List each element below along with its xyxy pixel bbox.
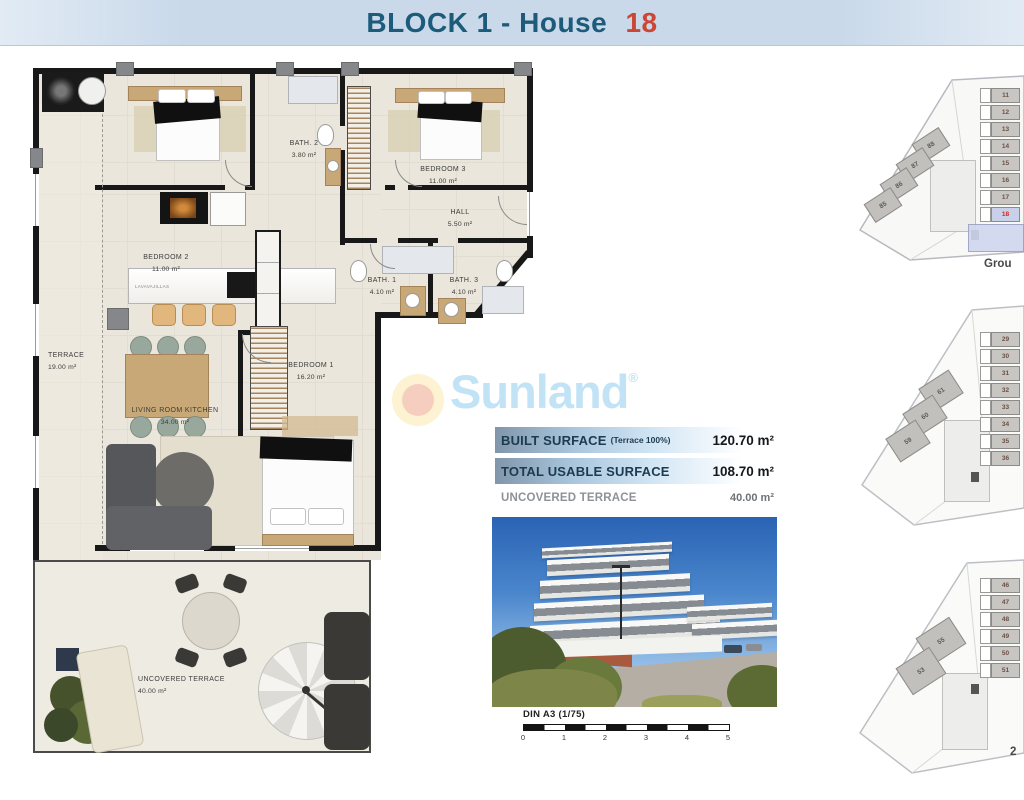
usable-surface-value: 108.70 m² — [712, 464, 774, 479]
side-table — [56, 648, 79, 671]
pillar — [276, 62, 294, 76]
dishwasher-label: LAVAVAJILLAS — [135, 284, 169, 289]
room-label-bedroom2: BEDROOM 211.00 m² — [116, 252, 216, 275]
pillar — [514, 62, 532, 76]
site-plan-second-floor: 46 47 48 49 50 51 55 53 — [852, 558, 1024, 793]
unit-cell: 35 — [980, 434, 1020, 449]
unit-18-footprint — [968, 224, 1024, 252]
unit-cell: 15 — [980, 156, 1020, 171]
title-bar: BLOCK 1 - House 18 — [0, 0, 1024, 46]
street-lamp-head — [612, 565, 630, 568]
washer-icon — [47, 77, 75, 105]
toilet-icon — [496, 260, 513, 282]
wardrobe — [347, 86, 371, 190]
site-plan-ground-floor: 11 12 13 14 15 16 17 18 88 87 86 85 — [852, 72, 1024, 272]
window — [33, 304, 39, 356]
page-title-number: 18 — [625, 7, 657, 38]
plant-icon — [44, 708, 78, 742]
terrace-table — [182, 592, 240, 650]
surface-table: BUILT SURFACE (Terrace 100%) 120.70 m² T… — [495, 427, 776, 512]
scale-tick: 0 — [521, 733, 525, 742]
wall — [458, 238, 533, 243]
scale-tick: 3 — [644, 733, 648, 742]
pillar — [116, 62, 134, 76]
uncovered-terrace-label: UNCOVERED TERRACE — [501, 492, 637, 504]
unit-cell: 51 — [980, 663, 1020, 678]
bed-footboard — [262, 534, 354, 546]
unit-cell: 33 — [980, 400, 1020, 415]
wall — [95, 185, 225, 190]
pillar — [107, 308, 129, 330]
unit-cell: 48 — [980, 612, 1020, 627]
unit-cell: 36 — [980, 451, 1020, 466]
room-label-terrace: TERRACE19.00 m² — [48, 350, 84, 373]
elevator-icon — [971, 472, 979, 482]
stool — [182, 304, 206, 326]
usable-surface-label: TOTAL USABLE SURFACE — [501, 464, 670, 479]
built-surface-label: BUILT SURFACE — [501, 433, 607, 448]
fridge-column — [210, 192, 246, 226]
stool — [152, 304, 176, 326]
built-surface-sublabel: (Terrace 100%) — [611, 435, 671, 445]
unit-cell: 34 — [980, 417, 1020, 432]
unit-cell: 16 — [980, 173, 1020, 188]
sink-icon — [327, 160, 339, 172]
page: BLOCK 1 - House 18 — [0, 0, 1024, 800]
street-lamp — [620, 567, 622, 639]
pillow — [308, 508, 344, 525]
stool — [212, 304, 236, 326]
unit-cell: 32 — [980, 383, 1020, 398]
site-plan-first-floor: 29 30 31 32 33 34 35 36 61 60 59 — [852, 300, 1024, 540]
elevator-icon — [971, 684, 979, 694]
unit-cell: 31 — [980, 366, 1020, 381]
unit-cell: 13 — [980, 122, 1020, 137]
unit-cell: 46 — [980, 578, 1020, 593]
scale-tick: 5 — [726, 733, 730, 742]
room-label-bedroom3: BEDROOM 311.00 m² — [393, 164, 493, 187]
round-rug — [152, 452, 214, 514]
unit-cell: 50 — [980, 646, 1020, 661]
scale-ruler — [523, 724, 730, 731]
site-plan-second-caption: 2 — [1010, 746, 1016, 758]
room-label-bath2: BATH. 23.80 m² — [274, 138, 334, 161]
pillar — [341, 62, 359, 76]
watermark-brand: Sunland® — [450, 364, 637, 419]
unit-cell-highlighted: 18 — [980, 207, 1020, 222]
scale-label: DIN A3 (1/75) — [523, 709, 735, 720]
unit-cell: 12 — [980, 105, 1020, 120]
scale-bar: DIN A3 (1/75) 0 1 2 3 4 5 — [523, 709, 735, 749]
pillow — [445, 91, 472, 104]
pillow — [270, 508, 306, 525]
shower — [288, 76, 338, 104]
pillar — [30, 148, 43, 168]
pillow — [158, 89, 186, 103]
car — [724, 645, 742, 653]
grass — [642, 695, 722, 707]
unit-cell: 49 — [980, 629, 1020, 644]
building-photo — [492, 517, 777, 707]
room-label-bedroom1: BEDROOM 116.20 m² — [261, 360, 361, 383]
page-title: BLOCK 1 - House 18 — [366, 7, 657, 39]
building-core — [930, 160, 976, 232]
dryer-icon — [78, 77, 106, 105]
wall — [345, 238, 377, 243]
usable-surface-row: TOTAL USABLE SURFACE 108.70 m² — [495, 458, 776, 484]
window — [527, 192, 533, 236]
uncovered-terrace-row: UNCOVERED TERRACE 40.00 m² — [495, 489, 776, 507]
vegetation — [492, 669, 617, 707]
unit-cell: 17 — [980, 190, 1020, 205]
room-label-bath1: BATH. 14.10 m² — [352, 275, 412, 298]
unit-cell: 11 — [980, 88, 1020, 103]
terrace-floor — [33, 104, 103, 560]
scale-tick: 1 — [562, 733, 566, 742]
room-label-uncovered-terrace: UNCOVERED TERRACE40.00 m² — [138, 674, 225, 697]
building-core — [942, 673, 988, 750]
building-tier — [540, 573, 690, 599]
laundry-unit — [42, 72, 104, 112]
oven-column — [160, 192, 208, 224]
blanket — [260, 436, 353, 461]
terrace-boundary — [102, 114, 103, 544]
scale-tick: 4 — [685, 733, 689, 742]
storage-column — [255, 230, 281, 330]
room-label-hall: HALL5.50 m² — [435, 207, 485, 230]
pillow — [187, 89, 215, 103]
page-title-main: BLOCK 1 - House — [366, 7, 607, 38]
sink-icon — [444, 302, 459, 317]
unit-cell: 30 — [980, 349, 1020, 364]
scale-tick: 2 — [603, 733, 607, 742]
unit-cell: 47 — [980, 595, 1020, 610]
pillow — [418, 91, 445, 104]
uncovered-terrace-value: 40.00 m² — [730, 492, 774, 504]
rug — [282, 416, 358, 436]
sunland-watermark: Sunland® — [392, 368, 652, 432]
room-label-living: LIVING ROOM KITCHEN34.00 m² — [110, 405, 240, 428]
unit-cell: 29 — [980, 332, 1020, 347]
oven-icon — [170, 198, 196, 218]
car — [746, 644, 762, 651]
wall — [375, 312, 381, 545]
unit-cell: 14 — [980, 139, 1020, 154]
built-surface-value: 120.70 m² — [712, 433, 774, 448]
window — [33, 174, 39, 226]
window — [33, 436, 39, 488]
building-tier-right — [687, 603, 772, 621]
sofa-icon — [106, 506, 212, 550]
lounger — [324, 684, 370, 750]
room-label-bath3: BATH. 34.10 m² — [434, 275, 494, 298]
sun-icon — [392, 374, 444, 426]
site-plan-ground-caption: Grou — [984, 258, 1011, 270]
lounger — [324, 612, 370, 680]
wall — [340, 68, 345, 126]
